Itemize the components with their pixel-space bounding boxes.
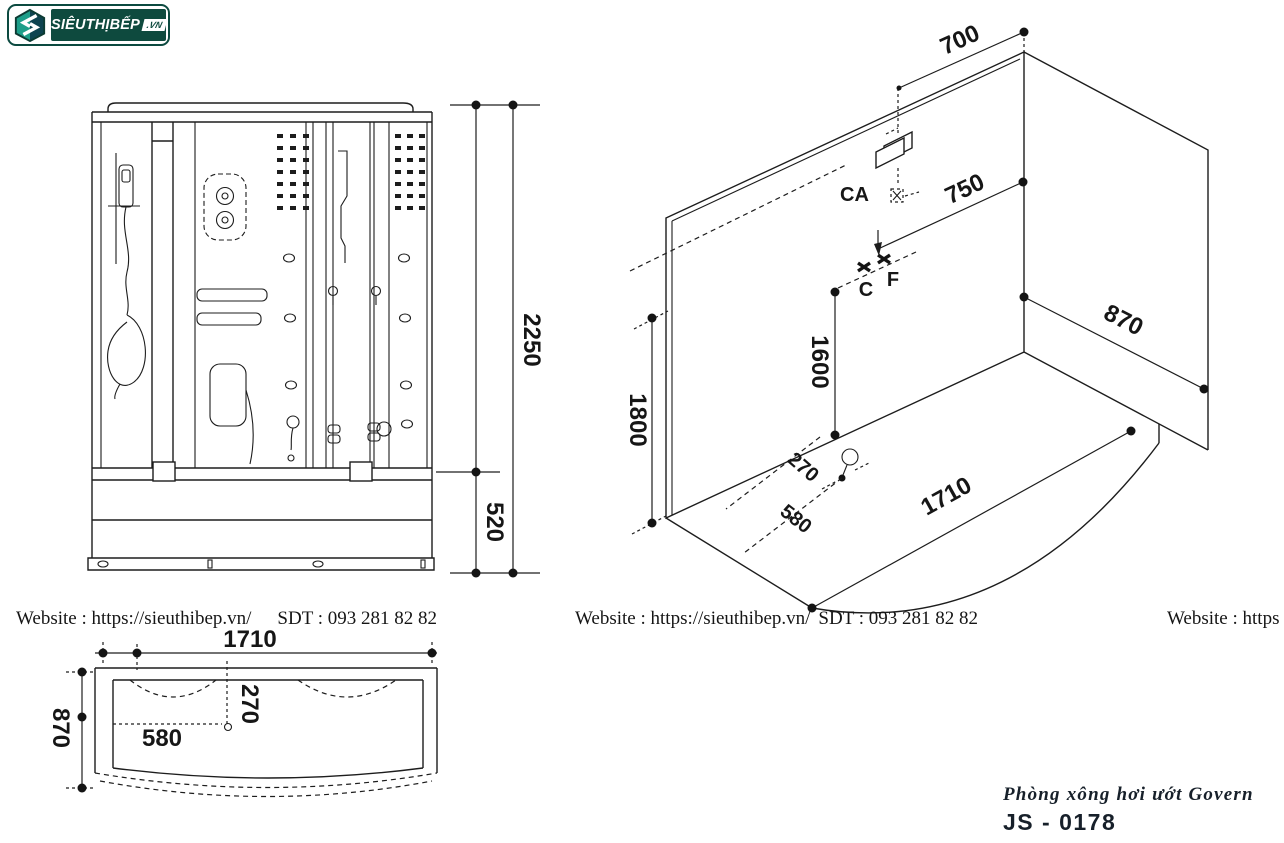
contact-line-3: Website : https: [1167, 608, 1279, 630]
website-text-1: Website : https://sieuthibep.vn/: [16, 608, 251, 630]
cf-fixture-marks: C F: [858, 242, 899, 301]
iso-dim-750: 750: [878, 169, 1028, 249]
corner-shelves: [197, 289, 267, 325]
website-text-3: Website : https: [1167, 608, 1279, 630]
dim-front-base-height: 520: [481, 502, 508, 542]
contact-line-2: Website : https://sieuthibep.vn/ SDT : 0…: [575, 608, 978, 630]
label-f: F: [887, 269, 899, 291]
technical-drawing: 2250 520 CA: [0, 0, 1284, 843]
dim-iso-700: 700: [936, 20, 984, 61]
label-c: C: [859, 279, 873, 301]
drain-symbol: [822, 449, 871, 489]
dim-plan-870: 870: [47, 708, 74, 748]
contact-line-1: Website : https://sieuthibep.vn/ SDT : 0…: [16, 608, 437, 630]
iso-dim-1710: 1710: [808, 427, 1136, 613]
phone-text-1: SDT : 093 281 82 82: [277, 608, 437, 630]
dim-iso-270: 270: [783, 448, 823, 486]
product-model: JS - 0178: [1003, 809, 1254, 836]
plan-view-drawing: 1710 870 580 270: [47, 626, 437, 797]
dim-front-total-height: 2250: [518, 313, 545, 366]
iso-view-drawing: CA C F 700: [624, 20, 1209, 613]
dim-plan-580: 580: [142, 725, 182, 752]
massage-jets-grid-right: [395, 134, 425, 210]
front-view-drawing: 2250 520: [88, 101, 545, 578]
dim-iso-1600: 1600: [806, 335, 833, 388]
control-panel: [204, 174, 246, 240]
dim-iso-750: 750: [941, 169, 989, 210]
phone-text-2: SDT : 093 281 82 82: [818, 608, 978, 630]
ca-connection-symbol: CA: [840, 184, 919, 206]
dim-iso-1800: 1800: [624, 393, 651, 446]
website-text-2: Website : https://sieuthibep.vn/: [575, 608, 810, 630]
dim-iso-870: 870: [1099, 299, 1147, 341]
front-view-dimensions: 2250 520: [436, 101, 545, 578]
iso-dim-870: 870: [1020, 293, 1209, 394]
plan-dim-1710: 1710: [95, 626, 437, 670]
fold-seat: [210, 364, 253, 464]
massage-jets-grid-left: [277, 134, 309, 210]
spec-sheet-page: { "logo": { "brand": "SIÊUTHỊBẾP", "tld"…: [0, 0, 1284, 843]
tub-base: [88, 462, 434, 570]
dim-plan-270: 270: [236, 684, 263, 724]
iso-dim-1800: 1800: [624, 311, 668, 534]
plan-dim-870: 870: [47, 668, 96, 793]
door-handle: [328, 151, 391, 443]
product-title-block: Phòng xông hơi ướt Govern JS - 0178: [1003, 784, 1254, 836]
dim-plan-1710: 1710: [223, 626, 276, 653]
plan-drain-symbol: [113, 661, 232, 731]
dim-iso-1710: 1710: [916, 472, 976, 521]
mixer-fixture: [287, 416, 299, 461]
shower-handset: [108, 153, 146, 399]
iso-dim-1600: 1600: [806, 288, 840, 440]
dim-iso-580: 580: [776, 500, 816, 538]
product-name: Phòng xông hơi ướt Govern: [1003, 784, 1254, 806]
power-socket-symbol: [876, 128, 912, 168]
body-jets: [284, 254, 413, 428]
label-ca: CA: [840, 184, 869, 206]
